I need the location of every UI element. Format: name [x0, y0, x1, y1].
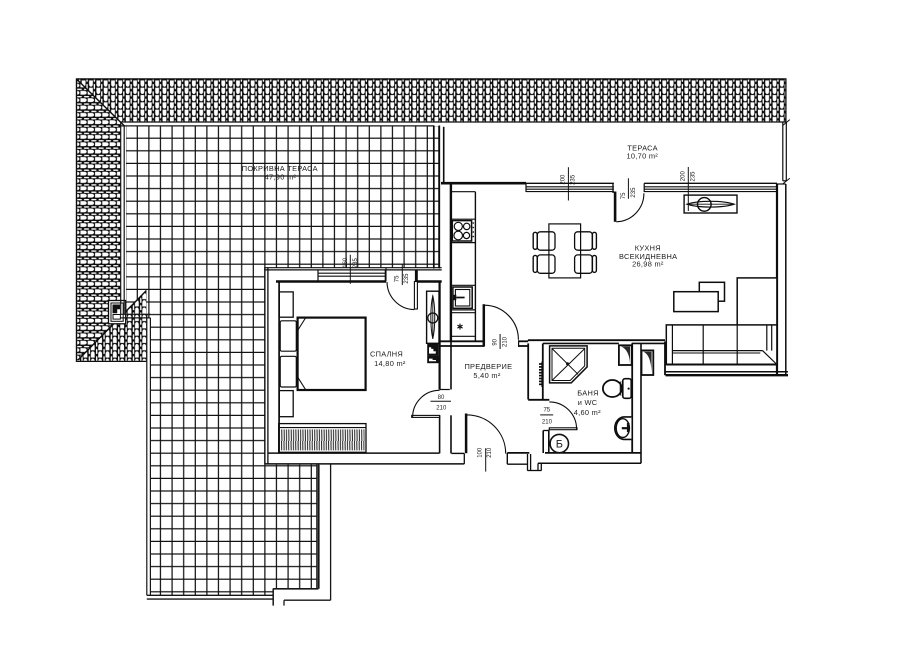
svg-text:200: 200: [561, 174, 567, 185]
svg-text:235: 235: [691, 171, 697, 182]
svg-text:80: 80: [438, 395, 445, 401]
svg-text:5,40 m²: 5,40 m²: [473, 371, 500, 380]
svg-text:4,60 m²: 4,60 m²: [574, 408, 601, 417]
svg-text:235: 235: [353, 258, 359, 269]
svg-text:90: 90: [493, 338, 499, 345]
svg-text:75: 75: [621, 192, 627, 199]
svg-text:160: 160: [343, 257, 349, 268]
svg-text:210: 210: [542, 419, 553, 425]
svg-text:ПРЕДВЕРИЕ: ПРЕДВЕРИЕ: [464, 362, 512, 371]
svg-text:210: 210: [502, 336, 508, 347]
svg-text:75: 75: [395, 275, 401, 282]
svg-text:75: 75: [543, 407, 550, 413]
svg-text:Б: Б: [556, 439, 563, 451]
svg-text:235: 235: [571, 174, 577, 185]
svg-text:235: 235: [404, 273, 410, 284]
svg-text:210: 210: [436, 405, 447, 411]
svg-text:235: 235: [631, 187, 637, 198]
svg-text:14,80 m²: 14,80 m²: [374, 359, 406, 368]
svg-text:100: 100: [477, 447, 483, 458]
svg-text:СПАЛНЯ: СПАЛНЯ: [370, 350, 403, 359]
svg-text:БАНЯ: БАНЯ: [577, 389, 599, 398]
svg-text:10,70 m²: 10,70 m²: [627, 152, 659, 161]
svg-text:47,90 m²: 47,90 m²: [265, 173, 297, 182]
svg-text:26,98 m²: 26,98 m²: [632, 260, 664, 269]
svg-text:210: 210: [487, 447, 493, 458]
svg-text:200: 200: [681, 171, 687, 182]
svg-text:и WC: и WC: [578, 398, 598, 407]
